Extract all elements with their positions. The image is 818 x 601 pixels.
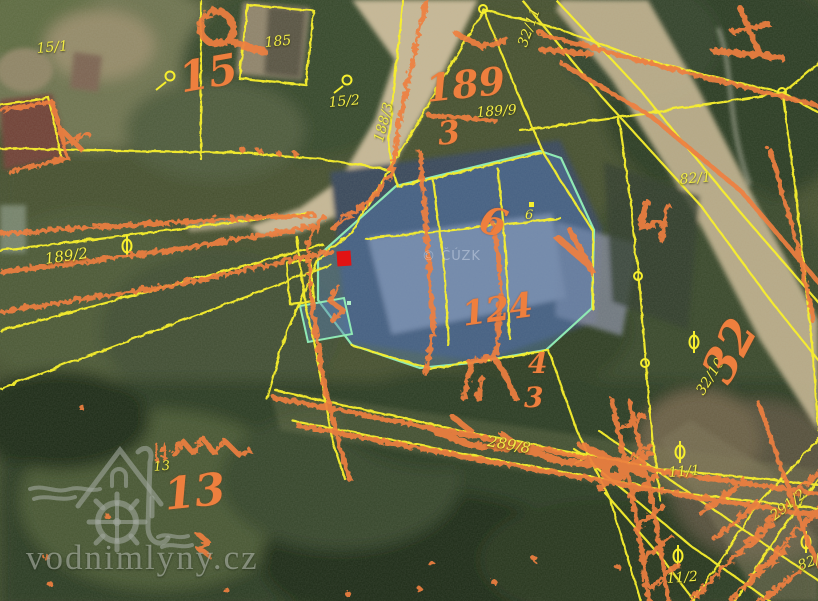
selected-building-marker[interactable] xyxy=(336,251,351,267)
parcel-number-label: 6 xyxy=(525,209,533,222)
cadastral-lines-layer xyxy=(0,0,818,601)
parcel-number-label: 15/1 xyxy=(36,39,69,56)
watermark-site-text: vodnimlyny.cz xyxy=(26,538,259,578)
pin-symbol xyxy=(334,76,352,94)
parcel-number-label: 11/2 xyxy=(666,570,698,586)
theta-symbol xyxy=(676,441,685,463)
parcel-number-label: 11/1 xyxy=(668,464,700,480)
point-mark xyxy=(529,202,534,207)
mint-point xyxy=(347,301,351,305)
sketch-number-label: 189 xyxy=(424,62,507,108)
pin-symbol xyxy=(156,72,175,91)
parcel-number-label: 82/1 xyxy=(679,170,712,187)
sketch-number-label: 3 xyxy=(524,384,543,412)
sketch-number-label: 4 xyxy=(528,350,547,378)
sketch-number-label: 3 xyxy=(436,116,461,150)
sketch-number-label: 13 xyxy=(162,468,227,518)
sketch-number-label: 15 xyxy=(176,48,241,100)
cuzk-copyright: © ČÚZK xyxy=(422,249,481,264)
logo-window xyxy=(112,469,126,486)
map-canvas[interactable]: 15/118515/2188/3189/9189/282/132/1132/10… xyxy=(0,0,818,601)
theta-symbol xyxy=(690,331,699,353)
sketch-number-label: 124 xyxy=(460,288,535,332)
parcel-number-label: 185 xyxy=(264,34,292,50)
parcel-number-label: 15/2 xyxy=(328,93,361,110)
parcel-number-label: 189/9 xyxy=(476,103,517,120)
